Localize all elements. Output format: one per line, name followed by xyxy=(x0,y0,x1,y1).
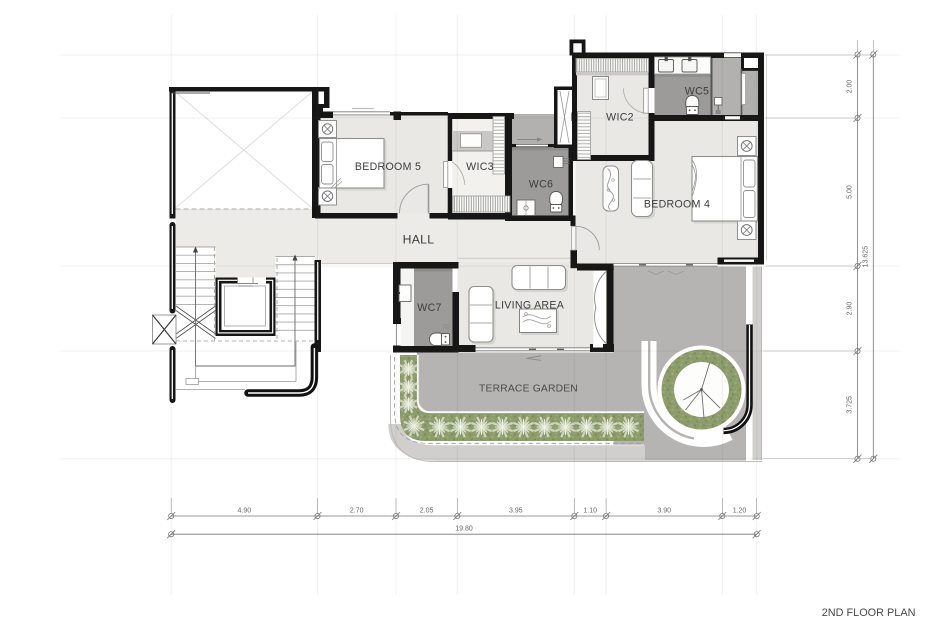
svg-text:WC6: WC6 xyxy=(529,179,553,191)
svg-text:BEDROOM 4: BEDROOM 4 xyxy=(644,199,710,211)
svg-text:19.80: 19.80 xyxy=(455,526,473,533)
svg-text:2ND FLOOR PLAN: 2ND FLOOR PLAN xyxy=(822,607,916,619)
svg-text:1.20: 1.20 xyxy=(733,508,747,515)
svg-text:2.70: 2.70 xyxy=(350,508,364,515)
svg-text:TERRACE GARDEN: TERRACE GARDEN xyxy=(479,384,578,395)
svg-text:4.90: 4.90 xyxy=(237,508,251,515)
svg-text:1.10: 1.10 xyxy=(583,508,597,515)
svg-text:13.625: 13.625 xyxy=(863,246,870,268)
svg-text:3.90: 3.90 xyxy=(657,508,671,515)
svg-text:2.90: 2.90 xyxy=(847,302,854,316)
svg-text:WC7: WC7 xyxy=(417,302,441,314)
svg-text:WIC3: WIC3 xyxy=(466,161,494,173)
svg-text:3.95: 3.95 xyxy=(509,508,523,515)
svg-text:BEDROOM 5: BEDROOM 5 xyxy=(355,161,421,173)
svg-text:HALL: HALL xyxy=(403,233,435,247)
svg-text:3.725: 3.725 xyxy=(847,396,854,414)
svg-text:WC5: WC5 xyxy=(685,86,709,98)
svg-text:LIVING AREA: LIVING AREA xyxy=(495,300,565,312)
svg-text:2.05: 2.05 xyxy=(420,508,434,515)
svg-text:2.00: 2.00 xyxy=(847,80,854,94)
svg-text:5.00: 5.00 xyxy=(847,185,854,199)
